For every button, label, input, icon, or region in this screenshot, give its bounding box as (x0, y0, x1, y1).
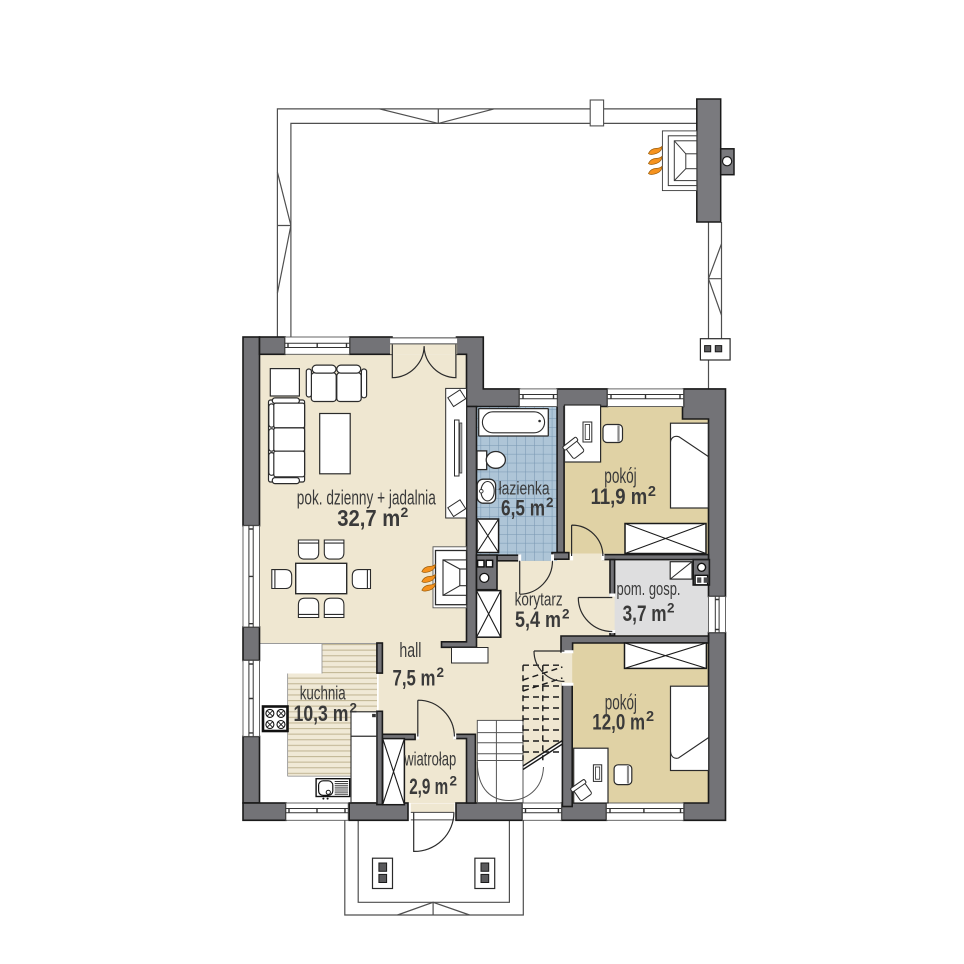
svg-text:wiatrołap: wiatrołap (404, 750, 457, 771)
svg-text:2: 2 (350, 700, 358, 715)
svg-text:2: 2 (562, 607, 570, 622)
svg-text:2: 2 (646, 709, 654, 725)
svg-text:2: 2 (437, 665, 445, 680)
svg-text:hall: hall (399, 640, 421, 662)
svg-text:12,0 m: 12,0 m (592, 710, 645, 735)
svg-text:2: 2 (648, 484, 656, 500)
svg-text:2: 2 (450, 774, 458, 789)
svg-text:5,4 m: 5,4 m (515, 607, 561, 632)
svg-text:2: 2 (546, 495, 554, 510)
svg-text:2: 2 (667, 601, 675, 616)
svg-text:2: 2 (401, 504, 409, 520)
svg-text:10,3 m: 10,3 m (294, 701, 349, 726)
svg-text:32,7 m: 32,7 m (337, 505, 400, 531)
svg-text:6,5 m: 6,5 m (501, 496, 545, 521)
svg-text:11,9 m: 11,9 m (591, 484, 648, 509)
svg-text:3,7 m: 3,7 m (623, 601, 667, 626)
svg-text:pom. gosp.: pom. gosp. (617, 579, 681, 599)
svg-text:2,9 m: 2,9 m (409, 774, 448, 799)
svg-text:7,5 m: 7,5 m (393, 665, 436, 690)
